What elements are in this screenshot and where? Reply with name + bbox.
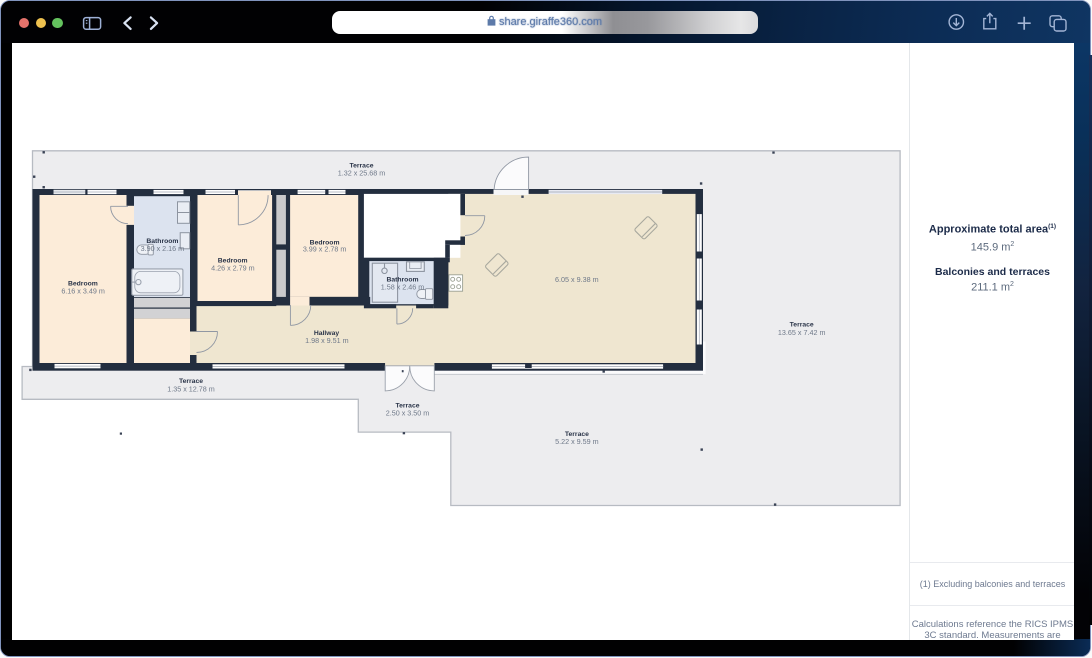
svg-text:6.16 x 3.49 m: 6.16 x 3.49 m: [61, 287, 105, 296]
svg-text:1.58 x 2.46 m: 1.58 x 2.46 m: [381, 282, 425, 291]
svg-text:13.65 x 7.42 m: 13.65 x 7.42 m: [778, 328, 826, 337]
svg-text:5.22 x 9.59 m: 5.22 x 9.59 m: [555, 437, 599, 446]
svg-text:1.35 x 12.78 m: 1.35 x 12.78 m: [167, 384, 215, 393]
svg-text:3.99 x 2.78 m: 3.99 x 2.78 m: [303, 245, 347, 254]
svg-text:1.98 x 9.51 m: 1.98 x 9.51 m: [305, 336, 349, 345]
svg-text:6.05 x 9.38 m: 6.05 x 9.38 m: [555, 275, 599, 284]
svg-text:2.50 x 3.50 m: 2.50 x 3.50 m: [386, 409, 430, 418]
svg-text:3.90 x 2.16 m: 3.90 x 2.16 m: [141, 244, 185, 253]
svg-text:4.26 x 2.79 m: 4.26 x 2.79 m: [211, 263, 255, 272]
svg-text:1.32 x 25.68 m: 1.32 x 25.68 m: [338, 169, 386, 178]
